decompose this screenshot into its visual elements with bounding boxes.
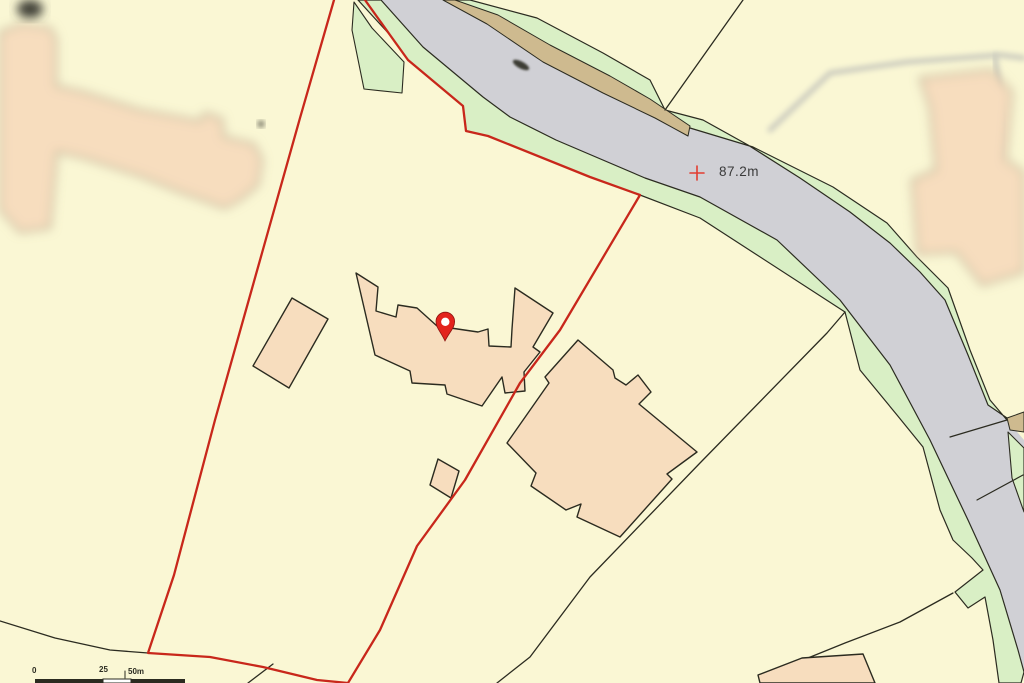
building-east-blurred	[912, 70, 1024, 285]
map-canvas[interactable]	[0, 0, 1024, 683]
scale-bar-segment-3	[131, 679, 185, 683]
scale-bar-label-50: 50m	[128, 667, 144, 676]
building-northwest-dot	[258, 121, 264, 127]
scale-bar-segment-1	[35, 679, 103, 683]
scale-bar-label-0: 0	[32, 666, 36, 675]
spot-height-label: 87.2m	[719, 164, 759, 179]
building-northwest-blob	[17, 0, 43, 18]
map-viewport[interactable]: 87.2m 0 25 50m	[0, 0, 1024, 683]
scale-bar-label-25: 25	[99, 665, 108, 674]
scale-bar-segment-2	[103, 679, 131, 683]
